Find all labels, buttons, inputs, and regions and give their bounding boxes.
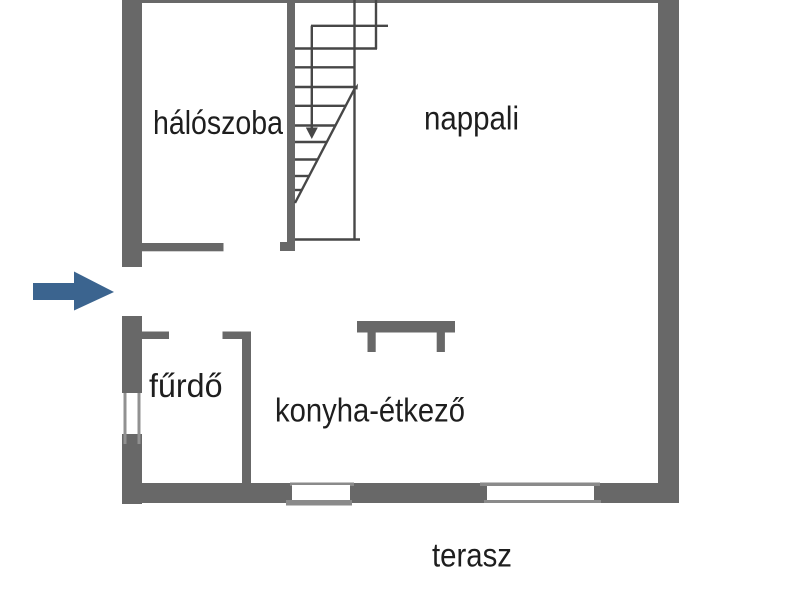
svg-text:hálószoba: hálószoba: [153, 104, 284, 141]
svg-text:konyha-étkező: konyha-étkező: [275, 392, 465, 429]
svg-text:fűrdő: fűrdő: [149, 367, 223, 404]
svg-text:terasz: terasz: [432, 537, 512, 574]
svg-text:nappali: nappali: [424, 100, 519, 137]
